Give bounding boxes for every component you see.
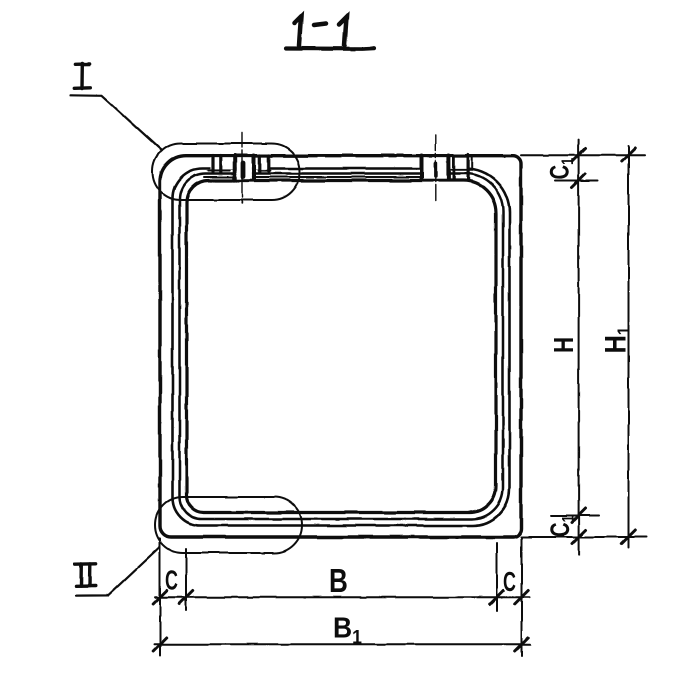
svg-text:C1: C1	[545, 158, 578, 180]
svg-text:C: C	[503, 566, 516, 597]
svg-text:B: B	[329, 563, 348, 600]
svg-text:C: C	[165, 564, 178, 595]
svg-text:C1: C1	[545, 515, 578, 537]
svg-text:B1: B1	[333, 612, 362, 648]
svg-text:H: H	[549, 337, 580, 353]
svg-text:H1: H1	[599, 327, 634, 354]
